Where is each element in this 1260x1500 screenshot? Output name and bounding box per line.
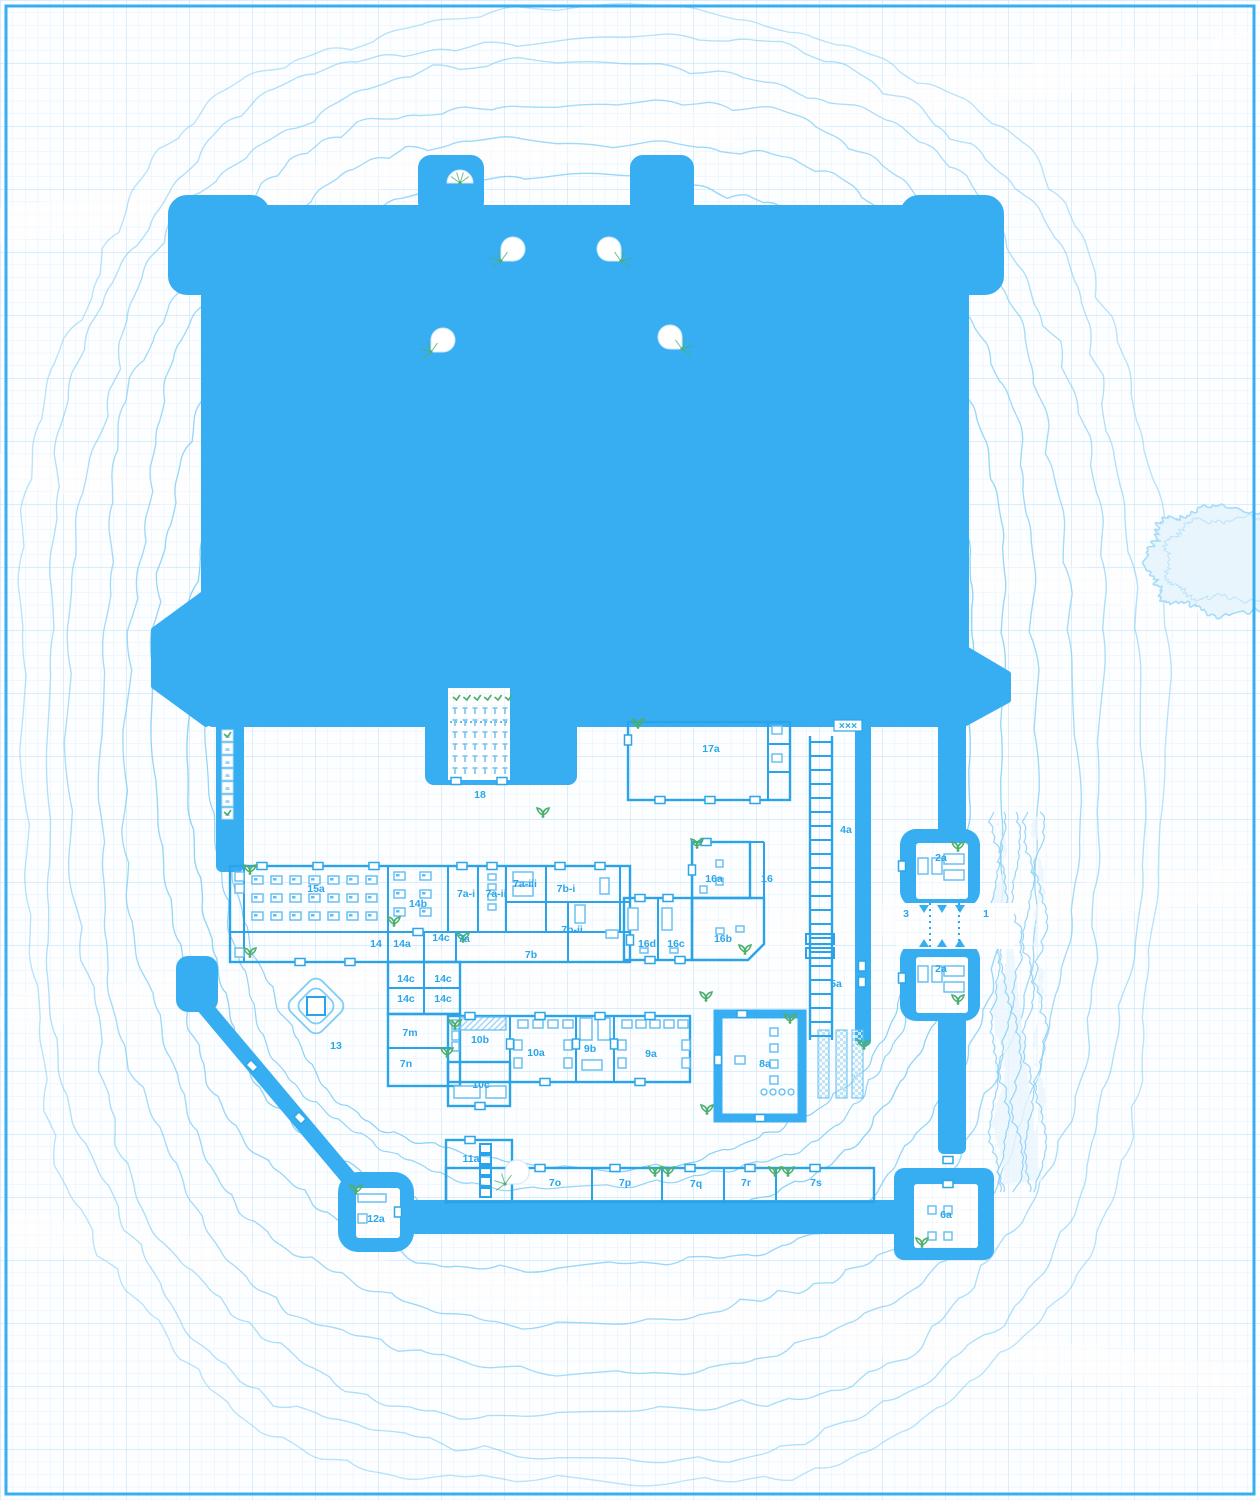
door-icon [663,895,673,902]
door-icon [635,895,645,902]
room-label: 14c [397,973,415,985]
room-label: 5a [830,978,842,990]
door-icon [715,1055,722,1065]
door-icon [413,929,423,936]
door-icon [859,961,866,971]
room-label: 6a [940,1209,952,1221]
room-label: 16a [705,873,723,885]
room-label: 16 [761,873,773,885]
door-icon [705,797,715,804]
door-icon [675,957,685,964]
room-label: 3 [903,908,909,920]
room-label: 17a [702,743,720,755]
room-label: 2a [935,963,947,975]
door-icon [943,1181,953,1188]
door-icon [313,863,323,870]
room-label: 7p [619,1177,631,1189]
room-label: 7b-ii [561,924,583,936]
room-label: 7m [402,1027,417,1039]
door-icon [943,1157,953,1164]
door-icon [257,863,267,870]
door-icon [611,1039,618,1049]
door-icon [465,1013,475,1020]
room-label: 10a [527,1047,545,1059]
room-label: 12a [367,1213,385,1225]
room-label: 14a [393,938,411,950]
door-icon [535,1013,545,1020]
door-icon [645,1013,655,1020]
room-label: 14b [409,898,427,910]
door-icon [627,935,634,945]
room-label: 7b-i [557,883,576,895]
door-icon [457,863,467,870]
room-label: 16c [667,938,685,950]
door-icon [595,863,605,870]
door-icon [655,797,665,804]
room-label: 10c [472,1079,490,1091]
room-label: 7s [810,1177,822,1189]
room-label: 15a [307,883,325,895]
door-icon [755,1115,765,1122]
room-label: 2a [935,852,947,864]
door-icon [635,1079,645,1086]
door-icon [899,861,906,871]
room-label: 11a [463,1153,480,1165]
room-label: 7q [690,1178,702,1190]
door-icon [369,863,379,870]
room-label: 7n [400,1058,412,1070]
room-label: 18 [474,789,486,801]
room-label: 8a [759,1058,771,1070]
door-icon [535,1165,545,1172]
door-icon [685,1165,695,1172]
room-label: 9b [584,1043,596,1055]
door-icon [573,1039,580,1049]
door-icon [689,865,696,875]
door-icon [555,863,565,870]
room-label: 14c [434,973,452,985]
door-icon [507,1039,514,1049]
room-label: 14c [432,932,450,944]
door-icon [745,1165,755,1172]
room-label: 7r [741,1177,751,1189]
spike-barrier-icon: ××× [839,720,857,732]
room-label: 7b [525,949,537,961]
door-icon [395,1207,402,1217]
door-icon [737,1011,747,1018]
room-label: 16b [714,933,732,945]
door-icon [451,778,461,785]
door-icon [645,957,655,964]
castle-blueprint-map: ××× 15a14b7a-i7a-ii7a-iii7b-i7b-ii1414a1… [0,0,1260,1500]
door-icon [497,778,507,785]
room-label: 14 [370,938,382,950]
door-icon [810,1165,820,1172]
door-icon [750,797,760,804]
room-label: 7a-iii [513,878,537,890]
door-icon [899,973,906,983]
door-icon [625,735,632,745]
room-label: 16d [638,938,656,950]
door-icon [465,1137,475,1144]
door-icon [487,863,497,870]
room-label: 7a-ii [485,888,506,900]
door-icon [610,1165,620,1172]
room-label: 14c [397,993,415,1005]
door-icon [540,1079,550,1086]
blueprint-canvas: ××× 15a14b7a-i7a-ii7a-iii7b-i7b-ii1414a1… [0,0,1260,1500]
door-icon [859,977,866,987]
room-label: 10b [471,1034,489,1046]
room-label: 13 [330,1040,342,1052]
room-label: 14c [434,993,452,1005]
door-icon [595,1013,605,1020]
room-label: 9a [645,1048,657,1060]
room-label: 1 [983,908,989,920]
room-label: 7a-i [457,888,475,900]
room-label: 7a [458,933,470,945]
door-icon [295,959,305,966]
door-icon [345,959,355,966]
door-icon [475,1103,485,1110]
keep-footprint [154,158,1008,782]
room-label: 7o [549,1177,561,1189]
room-label: 4a [840,824,852,836]
